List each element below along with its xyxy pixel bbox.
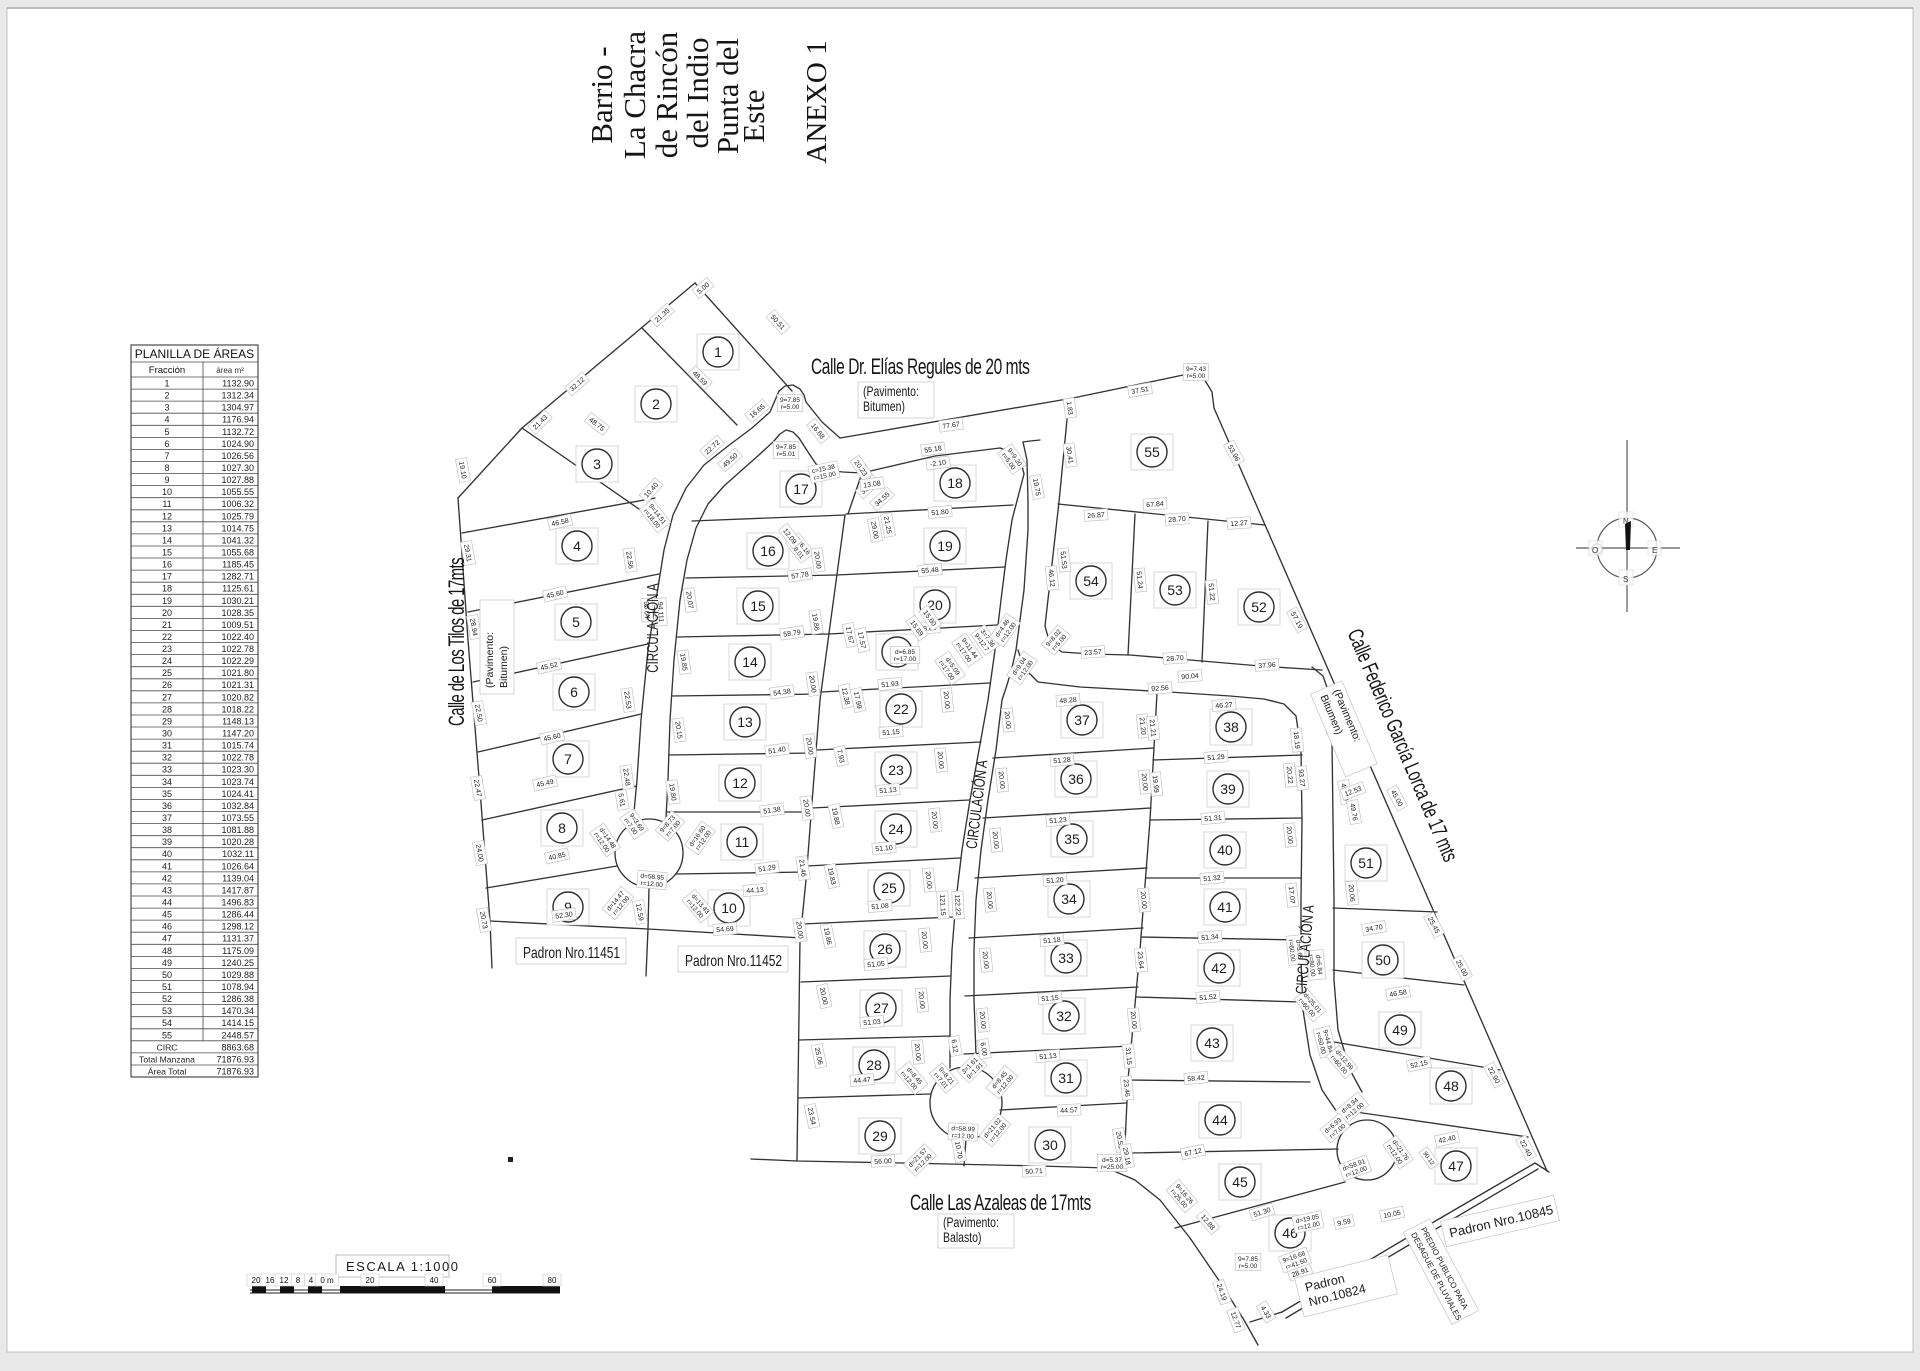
svg-text:1414.15: 1414.15 (221, 1018, 254, 1028)
svg-text:9=7.85: 9=7.85 (776, 444, 796, 451)
svg-text:1286.44: 1286.44 (221, 910, 254, 920)
svg-text:15: 15 (162, 548, 172, 558)
svg-text:35: 35 (1064, 831, 1080, 847)
svg-text:25: 25 (162, 668, 172, 678)
svg-text:51: 51 (162, 982, 172, 992)
svg-text:1139.04: 1139.04 (222, 873, 254, 883)
svg-text:43: 43 (1204, 1035, 1220, 1051)
svg-text:(Pavimento:: (Pavimento: (943, 1215, 999, 1231)
svg-text:1022.40: 1022.40 (221, 632, 254, 642)
svg-text:26: 26 (162, 680, 172, 690)
svg-text:36: 36 (1068, 771, 1084, 787)
svg-text:1024.41: 1024.41 (221, 789, 254, 799)
svg-text:PLANILLA DE ÁREAS: PLANILLA DE ÁREAS (135, 346, 254, 361)
svg-text:38: 38 (162, 825, 172, 835)
svg-text:3: 3 (593, 456, 601, 472)
svg-text:Balasto): Balasto) (943, 1230, 981, 1246)
svg-text:15: 15 (750, 598, 766, 614)
svg-text:60: 60 (488, 1276, 497, 1285)
svg-text:1312.34: 1312.34 (221, 391, 254, 401)
svg-text:48: 48 (1443, 1078, 1459, 1094)
svg-text:S: S (1623, 575, 1628, 584)
svg-text:34: 34 (162, 777, 172, 787)
svg-text:E: E (1652, 546, 1657, 555)
svg-text:8: 8 (558, 820, 566, 836)
svg-text:71876.93: 71876.93 (216, 1054, 254, 1064)
svg-text:47: 47 (162, 934, 172, 944)
svg-text:54: 54 (162, 1018, 172, 1028)
svg-text:1176.94: 1176.94 (222, 415, 254, 425)
svg-text:9=7.85: 9=7.85 (780, 397, 800, 404)
svg-text:1020.82: 1020.82 (221, 692, 254, 702)
svg-text:1023.30: 1023.30 (221, 765, 254, 775)
svg-text:52: 52 (1251, 599, 1267, 615)
svg-text:1022.29: 1022.29 (221, 656, 254, 666)
svg-text:O: O (1592, 546, 1598, 555)
svg-text:90.04: 90.04 (1181, 673, 1199, 681)
svg-text:28: 28 (162, 704, 172, 714)
svg-text:1028.35: 1028.35 (221, 608, 254, 618)
svg-text:1030.21: 1030.21 (221, 596, 254, 606)
svg-text:1148.13: 1148.13 (222, 717, 254, 727)
svg-text:Padron Nro.11451: Padron Nro.11451 (523, 943, 620, 961)
svg-text:20: 20 (162, 608, 172, 618)
svg-text:50: 50 (1375, 952, 1391, 968)
svg-text:2: 2 (164, 391, 169, 401)
svg-text:1015.74: 1015.74 (221, 741, 254, 751)
svg-text:23: 23 (888, 762, 904, 778)
svg-text:Calle de Los Tilos de 17mts: Calle de Los Tilos de 17mts (445, 558, 470, 726)
svg-text:16: 16 (266, 1276, 275, 1285)
svg-text:18: 18 (162, 584, 172, 594)
svg-text:4: 4 (164, 415, 169, 425)
svg-text:55: 55 (1144, 444, 1160, 460)
svg-text:20: 20 (252, 1276, 261, 1285)
svg-text:67.84: 67.84 (1146, 501, 1164, 509)
svg-text:5: 5 (164, 427, 169, 437)
svg-text:1023.74: 1023.74 (221, 777, 254, 787)
svg-text:1132.72: 1132.72 (222, 427, 254, 437)
svg-text:28.70: 28.70 (1168, 516, 1186, 524)
svg-text:1304.97: 1304.97 (221, 403, 254, 413)
svg-text:1470.34: 1470.34 (221, 1006, 254, 1016)
svg-text:1027.30: 1027.30 (221, 463, 254, 473)
svg-text:53: 53 (162, 1006, 172, 1016)
svg-text:122.22: 122.22 (953, 894, 961, 916)
svg-text:9=7.43: 9=7.43 (1186, 366, 1206, 373)
svg-text:8: 8 (296, 1276, 301, 1285)
svg-text:r=5.00: r=5.00 (1187, 373, 1206, 380)
svg-text:44: 44 (162, 898, 172, 908)
svg-text:1032.11: 1032.11 (222, 849, 254, 859)
svg-text:21: 21 (162, 620, 172, 630)
svg-text:7: 7 (164, 451, 169, 461)
svg-text:1021.80: 1021.80 (221, 668, 254, 678)
svg-text:1026.56: 1026.56 (221, 451, 254, 461)
svg-text:(Pavimento:: (Pavimento: (863, 384, 919, 400)
svg-text:1041.32: 1041.32 (221, 535, 254, 545)
svg-text:29: 29 (162, 717, 172, 727)
svg-text:1081.88: 1081.88 (221, 825, 254, 835)
svg-text:1298.12: 1298.12 (221, 922, 254, 932)
svg-text:Calle Dr. Elías Regules de 20: Calle Dr. Elías Regules de 20 mts (811, 355, 1029, 379)
svg-text:12: 12 (162, 511, 172, 521)
svg-text:13: 13 (162, 523, 172, 533)
svg-text:1021.31: 1021.31 (221, 680, 254, 690)
svg-text:1125.61: 1125.61 (222, 584, 254, 594)
svg-text:39: 39 (162, 837, 172, 847)
svg-text:34: 34 (1061, 891, 1077, 907)
svg-text:1417.87: 1417.87 (221, 885, 254, 895)
svg-text:Este: Este (736, 89, 771, 142)
svg-text:32: 32 (162, 753, 172, 763)
svg-text:1131.37: 1131.37 (222, 934, 254, 944)
svg-text:19: 19 (162, 596, 172, 606)
svg-text:ANEXO 1: ANEXO 1 (801, 40, 833, 163)
svg-text:44: 44 (1212, 1112, 1228, 1128)
svg-text:44.57: 44.57 (1060, 1107, 1078, 1115)
svg-text:31: 31 (162, 741, 172, 751)
svg-text:121.15: 121.15 (938, 894, 946, 916)
svg-text:1240.25: 1240.25 (221, 958, 254, 968)
svg-text:7: 7 (564, 751, 572, 767)
svg-text:1078.94: 1078.94 (221, 982, 254, 992)
svg-text:0 m: 0 m (320, 1276, 334, 1285)
svg-text:14: 14 (162, 535, 172, 545)
svg-text:40: 40 (1217, 842, 1233, 858)
svg-text:6: 6 (164, 439, 169, 449)
svg-text:1175.09: 1175.09 (222, 946, 254, 956)
svg-text:1006.32: 1006.32 (221, 499, 254, 509)
svg-text:1025.79: 1025.79 (221, 511, 254, 521)
svg-text:28: 28 (866, 1057, 882, 1073)
svg-text:33: 33 (1058, 950, 1074, 966)
svg-text:Bitumen): Bitumen) (498, 646, 510, 688)
svg-text:28.70: 28.70 (1166, 655, 1184, 663)
svg-text:42: 42 (162, 873, 172, 883)
svg-text:1073.55: 1073.55 (221, 813, 254, 823)
svg-text:17: 17 (162, 572, 172, 582)
svg-text:24: 24 (888, 821, 904, 837)
svg-text:1026.64: 1026.64 (221, 861, 254, 871)
svg-text:8863.68: 8863.68 (221, 1042, 254, 1052)
svg-text:20: 20 (366, 1276, 375, 1285)
svg-text:1018.22: 1018.22 (221, 704, 254, 714)
svg-text:26.87: 26.87 (1087, 512, 1105, 520)
svg-text:50: 50 (162, 970, 172, 980)
svg-text:39: 39 (1220, 781, 1236, 797)
svg-text:2: 2 (652, 396, 660, 412)
svg-text:1020.28: 1020.28 (221, 837, 254, 847)
svg-text:45: 45 (1232, 1174, 1248, 1190)
svg-text:16: 16 (162, 560, 172, 570)
svg-text:36: 36 (162, 801, 172, 811)
svg-text:49: 49 (1392, 1022, 1408, 1038)
svg-text:10: 10 (162, 487, 172, 497)
svg-text:33: 33 (162, 765, 172, 775)
svg-text:1286.38: 1286.38 (221, 994, 254, 1004)
svg-text:CIRCULACIÓN A: CIRCULACIÓN A (644, 583, 661, 673)
svg-text:71876.93: 71876.93 (216, 1067, 254, 1077)
svg-text:2448.57: 2448.57 (221, 1030, 254, 1040)
svg-text:r=25.00: r=25.00 (1101, 1164, 1124, 1171)
svg-text:1022.78: 1022.78 (221, 644, 254, 654)
svg-text:30: 30 (1042, 1137, 1058, 1153)
svg-text:1024.90: 1024.90 (221, 439, 254, 449)
svg-text:1029.88: 1029.88 (221, 970, 254, 980)
svg-text:5: 5 (572, 614, 580, 630)
svg-text:d=5.37: d=5.37 (1102, 1157, 1122, 1164)
svg-text:92.56: 92.56 (1151, 685, 1169, 693)
svg-text:r=5.00: r=5.00 (781, 404, 800, 411)
svg-text:3: 3 (164, 403, 169, 413)
svg-text:49: 49 (162, 958, 172, 968)
svg-text:12.27: 12.27 (1230, 520, 1248, 528)
svg-text:1032.84: 1032.84 (221, 801, 254, 811)
svg-text:54: 54 (1083, 573, 1099, 589)
svg-text:37: 37 (1074, 712, 1090, 728)
svg-text:42: 42 (1211, 960, 1227, 976)
svg-text:80: 80 (548, 1276, 557, 1285)
svg-text:56.00: 56.00 (874, 1158, 892, 1166)
svg-text:Barrio -: Barrio - (584, 46, 619, 143)
svg-text:r=5.01: r=5.01 (777, 451, 796, 458)
svg-text:Padron Nro.11452: Padron Nro.11452 (685, 951, 782, 969)
svg-text:43: 43 (162, 885, 172, 895)
svg-text:6: 6 (570, 684, 578, 700)
svg-text:Total Manzana: Total Manzana (139, 1054, 195, 1064)
svg-text:CIRC: CIRC (156, 1042, 177, 1052)
svg-text:41: 41 (1217, 899, 1233, 915)
svg-text:46: 46 (162, 922, 172, 932)
svg-text:1027.88: 1027.88 (221, 475, 254, 485)
svg-text:35: 35 (162, 789, 172, 799)
svg-text:1055.68: 1055.68 (221, 548, 254, 558)
svg-text:9=7.85: 9=7.85 (1238, 1256, 1258, 1263)
svg-text:31: 31 (1058, 1070, 1074, 1086)
svg-text:La Chacra: La Chacra (617, 31, 652, 159)
svg-text:Fracción: Fracción (149, 365, 185, 376)
svg-text:1282.71: 1282.71 (221, 572, 254, 582)
svg-text:Bitumen): Bitumen) (863, 399, 905, 415)
svg-text:4: 4 (309, 1276, 314, 1285)
svg-text:11: 11 (735, 834, 750, 850)
svg-text:1147.20: 1147.20 (222, 729, 254, 739)
svg-text:17: 17 (793, 481, 809, 497)
svg-text:1132.90: 1132.90 (222, 379, 254, 389)
svg-text:ESCALA 1:1000: ESCALA 1:1000 (346, 1259, 459, 1274)
svg-text:53: 53 (1167, 582, 1183, 598)
svg-text:r=17.00: r=17.00 (894, 656, 917, 663)
svg-text:19: 19 (937, 538, 953, 554)
svg-text:13: 13 (737, 714, 753, 730)
svg-text:26: 26 (877, 941, 893, 957)
svg-text:22: 22 (162, 632, 172, 642)
svg-text:41: 41 (162, 861, 172, 871)
svg-text:23.57: 23.57 (1084, 649, 1102, 657)
svg-text:51: 51 (1358, 855, 1374, 871)
svg-text:50.71: 50.71 (1025, 1168, 1043, 1176)
svg-text:1022.78: 1022.78 (221, 753, 254, 763)
svg-text:40: 40 (430, 1276, 439, 1285)
svg-text:27: 27 (162, 692, 172, 702)
svg-text:16: 16 (760, 543, 776, 559)
svg-text:Calle Las Azaleas de 17mts: Calle Las Azaleas de 17mts (910, 1191, 1091, 1215)
svg-text:38: 38 (1223, 719, 1239, 735)
svg-text:40: 40 (162, 849, 172, 859)
svg-text:área m²: área m² (216, 366, 244, 375)
svg-text:Área Total: Área Total (148, 1067, 187, 1077)
svg-text:11: 11 (162, 499, 171, 509)
svg-text:18: 18 (947, 475, 963, 491)
svg-text:d=6.85: d=6.85 (895, 649, 915, 656)
svg-text:12: 12 (280, 1276, 289, 1285)
svg-text:1009.51: 1009.51 (221, 620, 254, 630)
svg-text:22: 22 (893, 701, 909, 717)
svg-text:1: 1 (164, 379, 169, 389)
svg-text:55: 55 (162, 1030, 172, 1040)
svg-text:23: 23 (162, 644, 172, 654)
svg-text:1014.75: 1014.75 (221, 523, 254, 533)
svg-text:24: 24 (162, 656, 172, 666)
svg-text:32: 32 (1056, 1008, 1072, 1024)
svg-text:29: 29 (872, 1128, 888, 1144)
svg-text:r=5.00: r=5.00 (1239, 1263, 1258, 1270)
svg-text:10: 10 (721, 900, 737, 916)
svg-text:14: 14 (742, 654, 758, 670)
svg-text:25: 25 (881, 880, 897, 896)
svg-text:1055.55: 1055.55 (221, 487, 254, 497)
svg-text:4: 4 (573, 538, 581, 554)
svg-text:12: 12 (732, 775, 748, 791)
svg-text:48: 48 (162, 946, 172, 956)
svg-text:27: 27 (873, 1000, 889, 1016)
svg-text:(Pavimento:: (Pavimento: (484, 632, 496, 688)
svg-text:1185.45: 1185.45 (222, 560, 254, 570)
svg-text:de Rincón: de Rincón (649, 31, 684, 158)
svg-text:52: 52 (162, 994, 172, 1004)
svg-text:37: 37 (162, 813, 172, 823)
svg-text:45: 45 (162, 910, 172, 920)
svg-text:37.96: 37.96 (1258, 662, 1276, 670)
svg-text:1496.83: 1496.83 (221, 898, 254, 908)
svg-text:30: 30 (162, 729, 172, 739)
svg-text:8: 8 (164, 463, 169, 473)
svg-text:47: 47 (1448, 1158, 1464, 1174)
svg-text:9: 9 (164, 475, 169, 485)
svg-text:1: 1 (714, 344, 722, 360)
